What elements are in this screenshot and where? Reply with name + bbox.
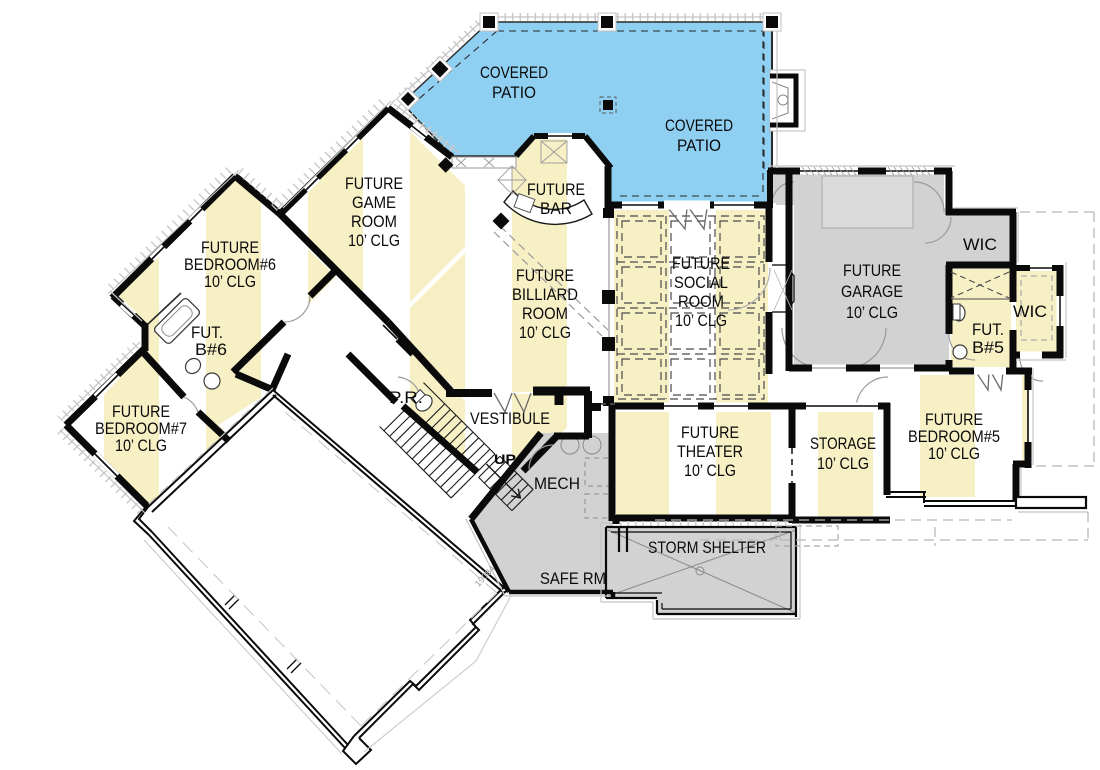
svg-text:COVERED: COVERED [480, 63, 548, 82]
svg-text:FUT.: FUT. [972, 320, 1004, 339]
svg-text:10’ CLG: 10’ CLG [519, 323, 571, 342]
svg-text:COVERED: COVERED [665, 116, 733, 135]
svg-text:SAFE RM: SAFE RM [540, 569, 606, 588]
svg-text:BAR: BAR [540, 199, 572, 218]
svg-text:10’ CLG: 10’ CLG [204, 272, 256, 291]
svg-text:ROOM: ROOM [678, 292, 724, 311]
svg-text:BILLIARD: BILLIARD [512, 285, 578, 304]
svg-text:GAME: GAME [352, 193, 396, 212]
svg-text:10’ CLG: 10’ CLG [817, 454, 869, 473]
svg-text:10’ CLG: 10’ CLG [684, 461, 736, 480]
svg-text:MECH: MECH [534, 474, 580, 493]
svg-text:ROOM: ROOM [351, 212, 397, 231]
svg-text:VESTIBULE: VESTIBULE [470, 409, 550, 428]
svg-text:P.R.: P.R. [389, 388, 423, 407]
svg-text:B#6: B#6 [195, 340, 227, 359]
svg-text:GARAGE: GARAGE [841, 282, 903, 301]
svg-text:STORAGE: STORAGE [810, 434, 876, 453]
svg-text:10’ CLG: 10’ CLG [675, 311, 727, 330]
svg-text:STORM SHELTER: STORM SHELTER [648, 538, 766, 557]
svg-text:FUTURE: FUTURE [681, 423, 739, 442]
svg-text:FUTURE: FUTURE [516, 266, 574, 285]
svg-text:B#5: B#5 [972, 338, 1004, 357]
svg-text:10’ CLG: 10’ CLG [846, 303, 898, 322]
svg-text:THEATER: THEATER [677, 442, 743, 461]
svg-text:10’ CLG: 10’ CLG [115, 436, 167, 455]
svg-text:WIC: WIC [1013, 302, 1047, 321]
svg-text:ROOM: ROOM [522, 304, 568, 323]
svg-text:SOCIAL: SOCIAL [674, 273, 728, 292]
svg-text:FUTURE: FUTURE [345, 174, 403, 193]
svg-text:FUTURE: FUTURE [843, 261, 901, 280]
svg-text:FUTURE: FUTURE [527, 180, 585, 199]
svg-text:PATIO: PATIO [677, 136, 721, 155]
svg-text:10’ CLG: 10’ CLG [348, 231, 400, 250]
svg-text:10’ CLG: 10’ CLG [928, 444, 980, 463]
svg-text:FUTURE: FUTURE [672, 254, 730, 273]
svg-text:PATIO: PATIO [492, 83, 536, 102]
svg-text:UP: UP [494, 451, 516, 467]
svg-text:WIC: WIC [963, 235, 997, 254]
